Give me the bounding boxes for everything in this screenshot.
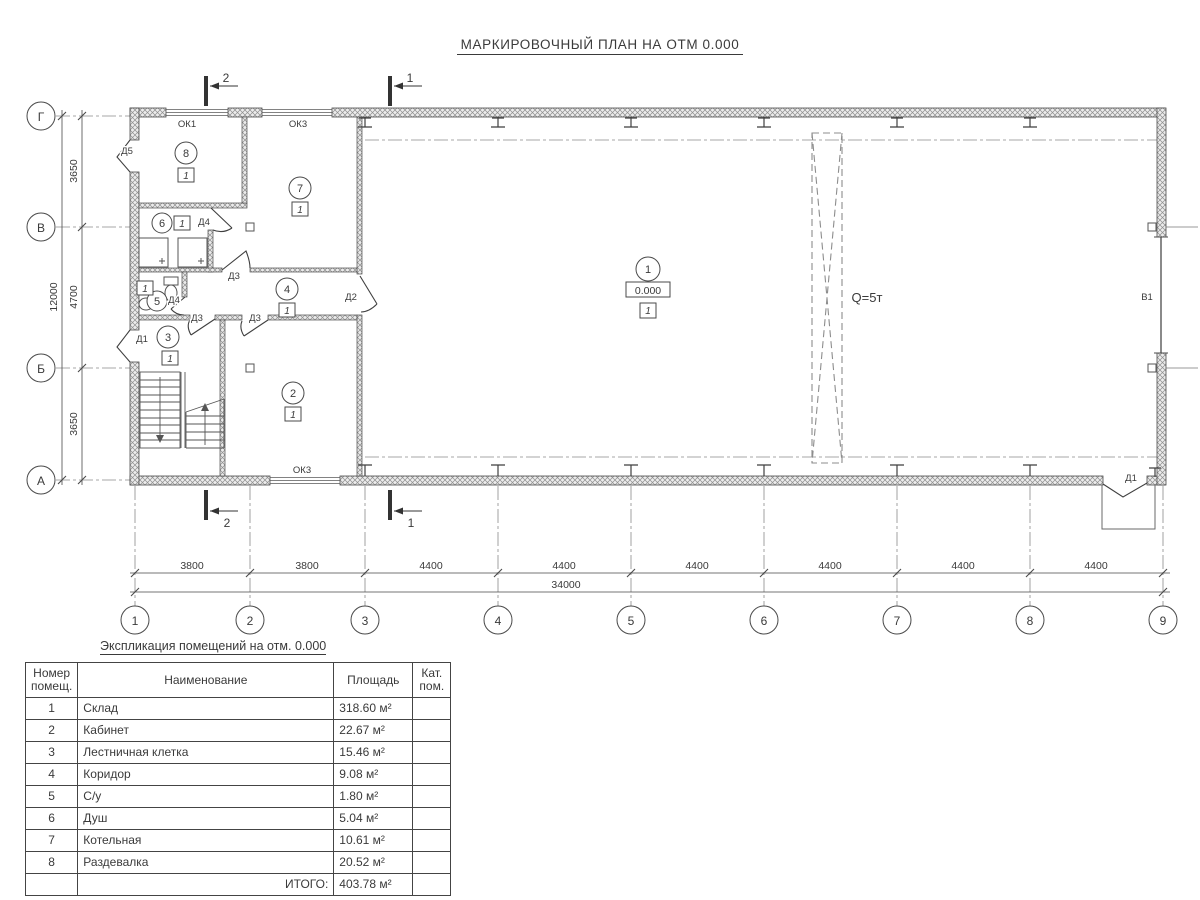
axis-label-v: В (37, 221, 45, 235)
window-glyphs (166, 110, 340, 484)
total-cat-cell (413, 874, 451, 896)
row-4-name: Коридор (78, 764, 334, 786)
table-row: 5 С/у 1.80 м² (26, 786, 451, 808)
row-7-cat (413, 830, 451, 852)
window-ok3-top-label: ОК3 (289, 119, 307, 130)
floor-plan-svg: 3800 3800 4400 4400 4400 4400 4400 4400 … (0, 0, 1200, 660)
room-3-floor: 1 (167, 354, 173, 365)
door-d2-label: Д2 (345, 292, 357, 303)
row-6-num: 6 (26, 808, 78, 830)
dim-span-4: 4400 (552, 560, 576, 572)
table-row: 8 Раздевалка 20.52 м² (26, 852, 451, 874)
drawing-sheet: МАРКИРОВОЧНЫЙ ПЛАН НА ОТМ 0.000 (0, 0, 1200, 900)
door-d4-shower-label: Д4 (198, 217, 210, 228)
columns-ibeams (358, 117, 1161, 477)
row-4-area: 9.08 м² (334, 764, 413, 786)
axis-label-g: Г (38, 110, 45, 124)
gate (1154, 227, 1198, 368)
door-d4-wc-label: Д4 (168, 295, 180, 306)
room-markers: 1 0.000 1 8 1 7 1 6 1 5 1 3 1 4 1 2 1 (137, 142, 670, 421)
row-2-name: Кабинет (78, 720, 334, 742)
door-d1-left-label: Д1 (136, 334, 148, 345)
axis-label-6: 6 (761, 614, 768, 628)
row-8-cat (413, 852, 451, 874)
row-4-cat (413, 764, 451, 786)
axis-label-5: 5 (628, 614, 635, 628)
axis-circles: 1 2 3 4 5 6 7 8 9 Г В Б А (27, 102, 1177, 634)
crane-zone (365, 133, 1157, 463)
room-8-number: 8 (183, 148, 189, 160)
room-5-number: 5 (154, 296, 160, 308)
table-row: 2 Кабинет 22.67 м² (26, 720, 451, 742)
dim-left-2: 4700 (68, 285, 80, 309)
table-row: 4 Коридор 9.08 м² (26, 764, 451, 786)
row-8-name: Раздевалка (78, 852, 334, 874)
porch-outline (1102, 485, 1155, 529)
row-6-area: 5.04 м² (334, 808, 413, 830)
header-area: Площадь (334, 663, 413, 698)
total-label: ИТОГО: (78, 874, 334, 896)
axis-label-9: 9 (1160, 614, 1167, 628)
dim-total-bottom: 34000 (551, 579, 580, 591)
room-6-number: 6 (159, 218, 165, 230)
header-name: Наименование (78, 663, 334, 698)
axis-label-8: 8 (1027, 614, 1034, 628)
room-4-floor: 1 (284, 306, 290, 317)
dim-span-3: 4400 (419, 560, 443, 572)
axis-label-2: 2 (247, 614, 254, 628)
row-1-num: 1 (26, 698, 78, 720)
dim-span-6: 4400 (818, 560, 842, 572)
row-8-area: 20.52 м² (334, 852, 413, 874)
dim-span-8: 4400 (1084, 560, 1108, 572)
row-2-area: 22.67 м² (334, 720, 413, 742)
schedule-caption: Экспликация помещений на отм. 0.000 (100, 639, 326, 655)
row-6-cat (413, 808, 451, 830)
row-2-cat (413, 720, 451, 742)
axis-label-b: Б (37, 362, 45, 376)
room-2-number: 2 (290, 388, 296, 400)
room-7-number: 7 (297, 183, 303, 195)
crane-capacity-label: Q=5т (852, 290, 883, 305)
room-6-floor: 1 (179, 219, 185, 230)
door-d3-stair-label: Д3 (191, 313, 203, 324)
row-5-num: 5 (26, 786, 78, 808)
room-8-floor: 1 (183, 171, 189, 182)
window-ok1-label: ОК1 (178, 119, 196, 130)
total-area: 403.78 м² (334, 874, 413, 896)
row-7-num: 7 (26, 830, 78, 852)
total-num-cell (26, 874, 78, 896)
window-ok3-bottom-label: ОК3 (293, 465, 311, 476)
column-squares (246, 223, 1156, 372)
room-7-floor: 1 (297, 205, 303, 216)
row-5-area: 1.80 м² (334, 786, 413, 808)
room-2-floor: 1 (290, 410, 296, 421)
room-1-number: 1 (645, 264, 651, 276)
row-8-num: 8 (26, 852, 78, 874)
dim-span-7: 4400 (951, 560, 975, 572)
header-number: Номер помещ. (26, 663, 78, 698)
opening-labels: ОК1 ОК3 ОК3 Д5 Д1 Д1 Д4 Д4 Д3 Д3 Д3 Д2 В… (121, 119, 1153, 484)
table-row: 6 Душ 5.04 м² (26, 808, 451, 830)
table-row: 1 Склад 318.60 м² (26, 698, 451, 720)
section-2-top-label: 2 (223, 71, 230, 85)
dim-span-1: 3800 (180, 560, 204, 572)
dim-left-1: 3650 (68, 159, 80, 183)
room-3-number: 3 (165, 332, 171, 344)
room-1-floor: 1 (645, 306, 651, 317)
row-3-cat (413, 742, 451, 764)
row-5-cat (413, 786, 451, 808)
section-1-bottom-label: 1 (408, 516, 415, 530)
room-4-number: 4 (284, 284, 290, 296)
dim-span-2: 3800 (295, 560, 319, 572)
stairs (140, 372, 224, 448)
row-6-name: Душ (78, 808, 334, 830)
row-3-name: Лестничная клетка (78, 742, 334, 764)
table-row: 7 Котельная 10.61 м² (26, 830, 451, 852)
header-category: Кат. пом. (413, 663, 451, 698)
axis-label-4: 4 (495, 614, 502, 628)
door-d3-corridor-label: Д3 (228, 271, 240, 282)
row-3-area: 15.46 м² (334, 742, 413, 764)
room-5-floor: 1 (142, 284, 148, 295)
row-1-cat (413, 698, 451, 720)
dim-left-3: 3650 (68, 412, 80, 436)
room-schedule-table: Номер помещ. Наименование Площадь Кат. п… (25, 662, 451, 896)
room-1-level: 0.000 (635, 285, 661, 297)
dim-total-left: 12000 (48, 282, 60, 311)
door-d1-bottom-label: Д1 (1125, 473, 1137, 484)
table-total-row: ИТОГО: 403.78 м² (26, 874, 451, 896)
section-2-bottom-label: 2 (224, 516, 231, 530)
row-3-num: 3 (26, 742, 78, 764)
row-5-name: С/у (78, 786, 334, 808)
table-row: 3 Лестничная клетка 15.46 м² (26, 742, 451, 764)
row-7-name: Котельная (78, 830, 334, 852)
axis-label-1: 1 (132, 614, 139, 628)
door-d3-office-label: Д3 (249, 313, 261, 324)
schedule-header-row: Номер помещ. Наименование Площадь Кат. п… (26, 663, 451, 698)
section-1-top-label: 1 (407, 71, 414, 85)
row-7-area: 10.61 м² (334, 830, 413, 852)
door-d5-label: Д5 (121, 146, 133, 157)
axis-label-a: А (37, 474, 45, 488)
axis-label-3: 3 (362, 614, 369, 628)
gate-v1-label: В1 (1141, 292, 1153, 303)
row-2-num: 2 (26, 720, 78, 742)
row-4-num: 4 (26, 764, 78, 786)
axis-label-7: 7 (894, 614, 901, 628)
row-1-area: 318.60 м² (334, 698, 413, 720)
dim-span-5: 4400 (685, 560, 709, 572)
row-1-name: Склад (78, 698, 334, 720)
